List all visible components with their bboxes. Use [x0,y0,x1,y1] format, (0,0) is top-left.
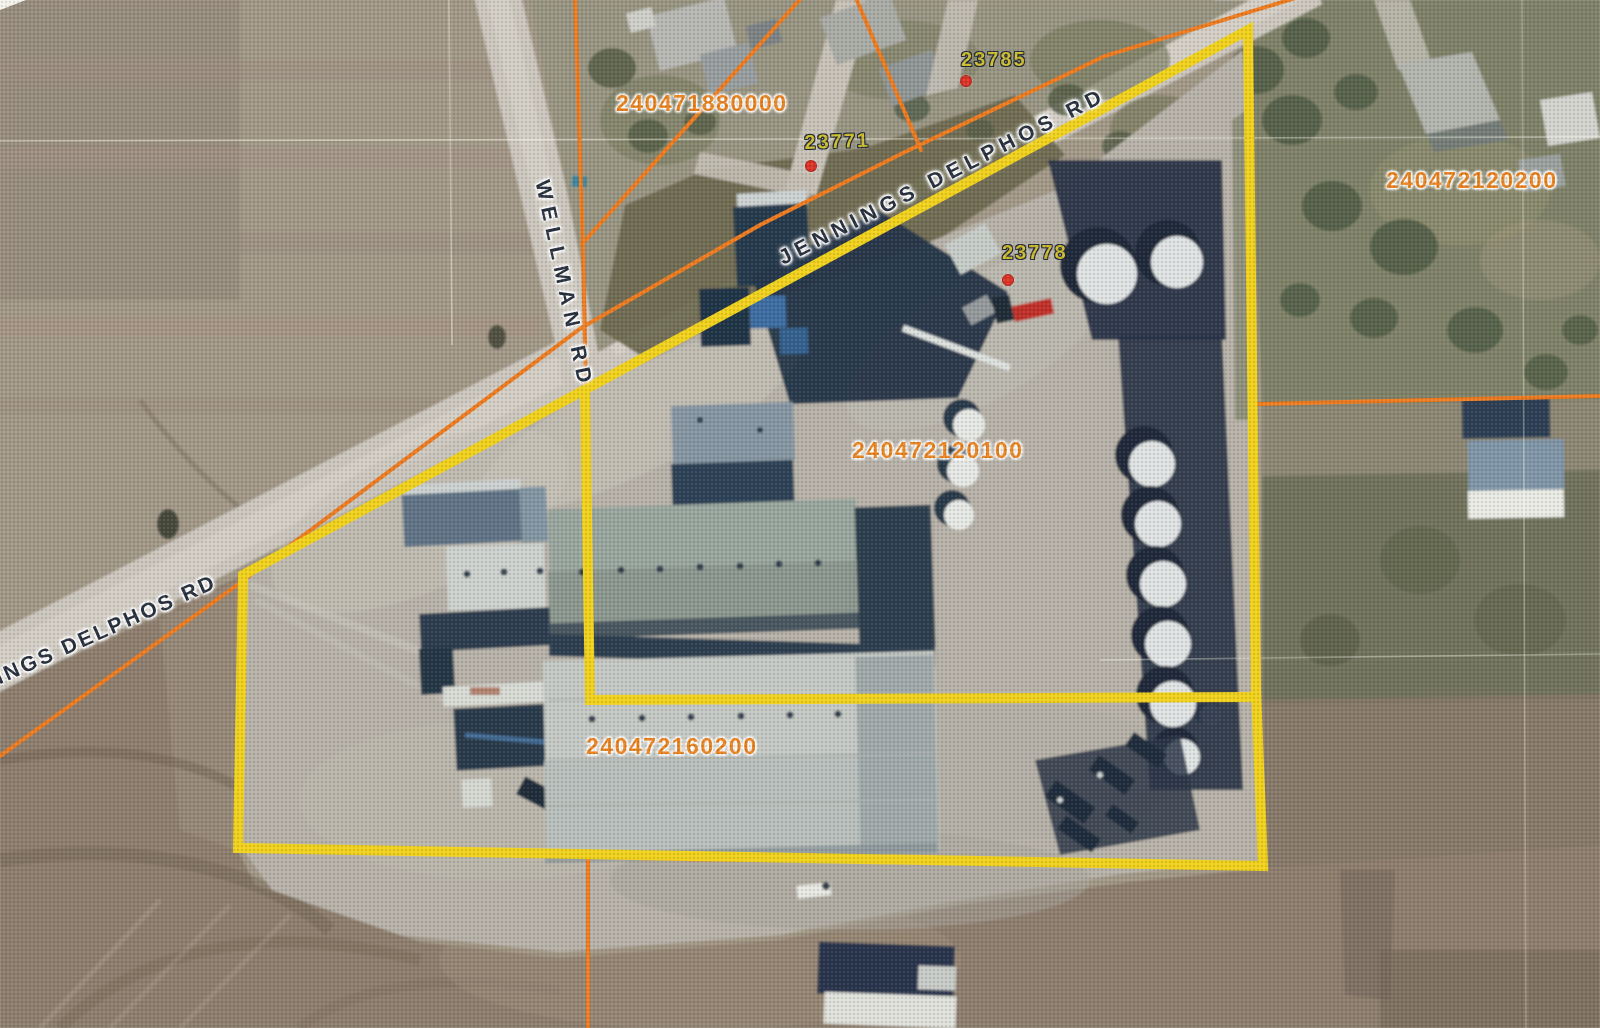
parcel-map-image: JENNINGS DELPHOS RD INGS DELPHOS RD WELL… [0,0,1600,1028]
parcel-label-240472160200: 240472160200 [586,733,758,760]
parcel-label-240472120200: 240472120200 [1386,167,1558,194]
address-point-icon [1002,274,1014,286]
parcel-label-240471880000: 240471880000 [616,90,788,117]
address-label-23771: 23771 [804,130,870,155]
aerial-photo-layer [0,0,1600,1028]
address-label-23785: 23785 [961,49,1027,72]
address-point-icon [960,75,972,87]
address-point-icon [805,160,817,172]
parcel-label-240472120100: 240472120100 [852,437,1024,464]
address-label-23778: 23778 [1002,242,1068,265]
